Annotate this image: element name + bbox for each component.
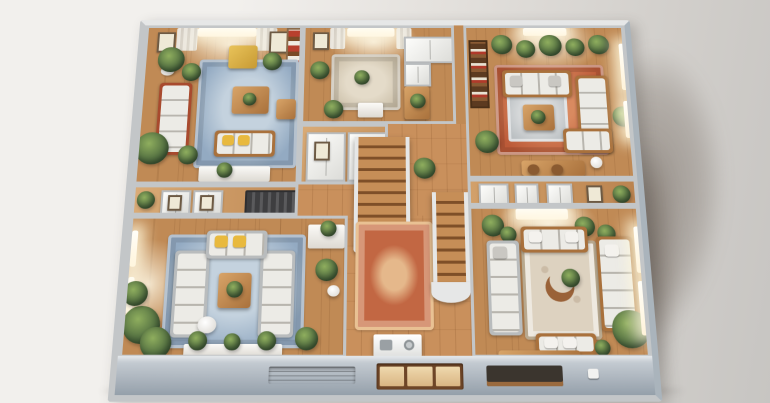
floor-plate [119, 25, 651, 355]
pillow [510, 76, 523, 87]
yellow-pillow [238, 135, 250, 145]
plant [410, 94, 426, 109]
sectional-corner [563, 129, 614, 153]
framed-picture [586, 185, 603, 202]
floor-lamp [327, 285, 340, 296]
plant [324, 100, 344, 118]
pillow [529, 231, 543, 242]
plant [136, 191, 155, 209]
floor-lamp [590, 157, 603, 168]
plant [295, 327, 319, 350]
window-north [347, 28, 394, 37]
washer [546, 183, 573, 205]
yellow-armchair [228, 45, 258, 68]
switch-block [588, 369, 599, 379]
skylight-window [515, 209, 568, 220]
table-plant [531, 110, 546, 124]
plant [538, 35, 562, 56]
persian-rug [355, 222, 434, 331]
staircase-curved-base [431, 282, 471, 303]
model-base-plinth [108, 356, 663, 402]
yellow-pillow [214, 235, 228, 247]
plant [157, 47, 186, 72]
room-lounge-se [468, 206, 651, 356]
window-east [623, 101, 633, 138]
island-sink [404, 340, 415, 351]
pillow [548, 76, 561, 87]
pillow [493, 247, 508, 259]
pillow [565, 231, 579, 242]
stool [527, 164, 539, 175]
hallway-east [467, 179, 638, 206]
plant [516, 40, 536, 58]
pillow [563, 338, 577, 349]
vent-panel [268, 367, 355, 384]
plant [354, 70, 369, 84]
yellow-pillow [222, 135, 234, 145]
stool [551, 164, 563, 175]
plant [414, 158, 436, 179]
island-hob [380, 340, 393, 351]
plant [612, 185, 631, 202]
framed-picture [167, 195, 182, 211]
yellow-pillow [233, 235, 247, 247]
pillow [544, 338, 558, 349]
media-unit [244, 190, 298, 215]
bush [139, 327, 173, 356]
screenshot-canvas [0, 0, 770, 403]
sectional-right [257, 251, 295, 338]
room-living-nw [133, 25, 303, 184]
base-dark-slot [486, 366, 563, 387]
window-west [129, 231, 138, 267]
floorplan-model [108, 20, 663, 402]
plant [565, 38, 585, 56]
plant [315, 259, 338, 281]
bush [122, 281, 149, 306]
plant [320, 221, 336, 237]
room-family-sw [119, 216, 348, 356]
base-window-insert [376, 363, 463, 389]
curtain [176, 28, 198, 51]
plant [475, 130, 499, 153]
framed-picture [199, 195, 214, 211]
kitchen-island [373, 334, 421, 355]
plant [134, 132, 170, 164]
corridor-west [131, 184, 299, 215]
appliance-shelf [404, 37, 456, 63]
door-panel [514, 183, 539, 205]
framed-picture [314, 142, 330, 161]
centerpiece-plant [561, 269, 581, 287]
bookshelf [468, 40, 489, 108]
wall-art [313, 32, 330, 50]
window-east [618, 44, 629, 90]
door-panel [479, 183, 510, 205]
small-table [358, 103, 383, 118]
plant [587, 35, 609, 54]
plant [310, 61, 330, 79]
plant [491, 35, 513, 54]
staircase-secondary [432, 192, 471, 288]
window-north [198, 28, 257, 37]
plant [594, 340, 611, 356]
room-lounge-ne [463, 25, 636, 178]
window-east [633, 227, 644, 273]
white-console [198, 166, 270, 181]
washer [404, 63, 431, 86]
side-table [276, 99, 296, 119]
curtain [330, 28, 345, 49]
pillow [604, 244, 619, 256]
